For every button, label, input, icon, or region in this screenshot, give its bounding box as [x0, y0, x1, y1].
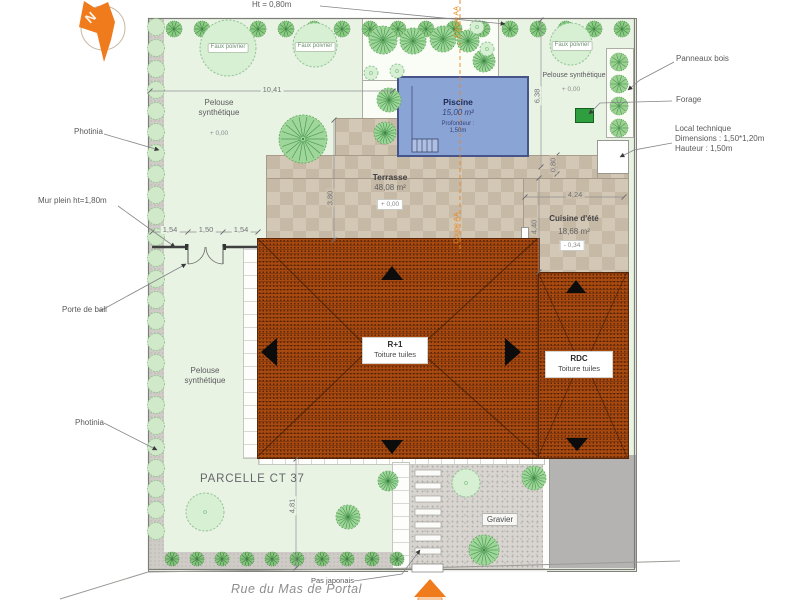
dim-garden-width: 10,41: [261, 86, 284, 94]
terrace-notch: [335, 118, 399, 158]
north-letter: N: [82, 9, 99, 26]
wall-label: Mur plein ht=1,80m: [38, 196, 107, 206]
parcel-label: PARCELLE CT 37: [200, 473, 305, 485]
upper-floor-name: R+1: [363, 340, 427, 350]
dim-kitchen-depth: 4,40: [530, 218, 538, 237]
technical-room-dimensions: Dimensions : 1,50*1,20m: [675, 134, 764, 144]
dim-kitchen-width: 4,24: [566, 191, 585, 199]
section-aa-label-top: Coupe AA: [454, 6, 461, 38]
wood-panels-label: Panneaux bois: [676, 54, 729, 64]
north-arrow-circle: [81, 6, 125, 50]
dim-garden-right: 6,38: [533, 87, 541, 106]
borehole-label: Forage: [676, 95, 701, 105]
dim-wall-seg-1: 1,54: [161, 226, 180, 234]
lawn-level-topright: + 0,00: [562, 86, 580, 93]
pool-name: Piscine: [443, 97, 473, 108]
door-label: Porte de bali: [62, 305, 107, 315]
tree-label-2: Faux poivrier: [295, 42, 336, 52]
south-hedge-strip: [164, 552, 410, 569]
east-planting-bed: [606, 48, 634, 138]
terrace-area: 48,08 m²: [374, 183, 406, 193]
pool-planting-bed-top: [362, 18, 499, 84]
dim-wall-seg-2: 1,50: [197, 226, 216, 234]
dim-kitchen-offset: 0,80: [549, 156, 557, 175]
tree-label-1: Faux poivrier: [208, 43, 249, 53]
technical-room-label: Local technique Dimensions : 1,50*1,20m …: [675, 124, 764, 154]
borehole-marker: [575, 108, 594, 123]
entrance-arrow-icon: [414, 579, 446, 597]
gravel-label: Gravier: [482, 513, 518, 526]
lawn-label-topright: Pelouse synthétique: [542, 72, 605, 81]
terrace-name: Terrasse: [373, 172, 408, 183]
technical-room-box: [597, 140, 629, 174]
driveway-area: [549, 455, 636, 568]
pool-area: 15,00 m²: [442, 108, 474, 118]
kitchen-level-badge: - 0,34: [560, 240, 585, 251]
driveway-gap: [543, 456, 549, 568]
photinia-bottom-label: Photinia: [75, 418, 104, 428]
ground-floor-labelbox: RDC Toiture tuiles: [545, 351, 613, 378]
gravel-area: [408, 457, 547, 572]
upper-floor-labelbox: R+1 Toiture tuiles: [362, 337, 428, 364]
west-hedge-strip: [149, 19, 164, 569]
kitchen-area: 18,68 m²: [558, 227, 590, 237]
site-plan: N Ht = 0,80m Photinia Mur plein ht=1,80m…: [0, 0, 800, 600]
upper-floor-roof-type: Toiture tuiles: [363, 350, 427, 359]
terrace-level-badge: + 0,00: [377, 199, 403, 210]
lawn-label-topleft: Pelouse synthétique: [192, 98, 246, 118]
dim-south-gap: 4,81: [288, 497, 296, 516]
dim-wall-seg-3: 1,54: [232, 226, 251, 234]
garden-path: [392, 462, 410, 570]
ground-floor-roof-type: Toiture tuiles: [546, 364, 612, 373]
photinia-top-label: Photinia: [74, 127, 103, 137]
technical-room-height: Hauteur : 1,50m: [675, 144, 764, 154]
kitchen-name: Cuisine d'été: [549, 214, 598, 224]
stepping-stones-label: Pas japonais: [311, 576, 354, 585]
technical-room-title: Local technique: [675, 124, 764, 134]
pool-depth-value: 1,50m: [450, 128, 467, 136]
section-aa-label-mid: Coupe AA: [454, 212, 461, 244]
lawn-label-south: Pelouse synthétique: [178, 366, 232, 386]
ground-floor-name: RDC: [546, 354, 612, 364]
north-arrow-icon: [79, 1, 115, 62]
dim-terrace-depth: 3,80: [326, 189, 334, 208]
hedge-height-label: Ht = 0,80m: [252, 0, 291, 10]
tree-label-3: Faux poivrier: [552, 41, 593, 51]
lawn-level-topleft: + 0,00: [210, 130, 228, 137]
